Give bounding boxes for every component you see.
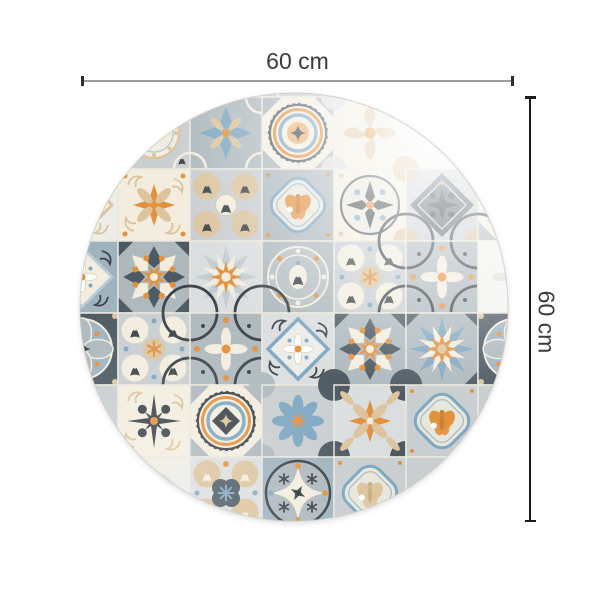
mosaic-tile [478,25,550,97]
mosaic-tile [46,97,118,169]
mosaic-tile [478,97,550,169]
mat-tile-pattern [0,0,600,600]
mosaic-tile [46,25,118,97]
mosaic-tile [478,457,550,529]
mosaic-tile [46,457,118,529]
mosaic-tile [190,25,262,97]
mosaic-tile [118,25,190,97]
mosaic-tile [321,12,419,110]
mosaic-tile [406,25,478,97]
round-mat-image [0,0,600,600]
product-dimension-diagram: 60 cm 60 cm [0,0,600,600]
mosaic-tile [262,25,334,97]
